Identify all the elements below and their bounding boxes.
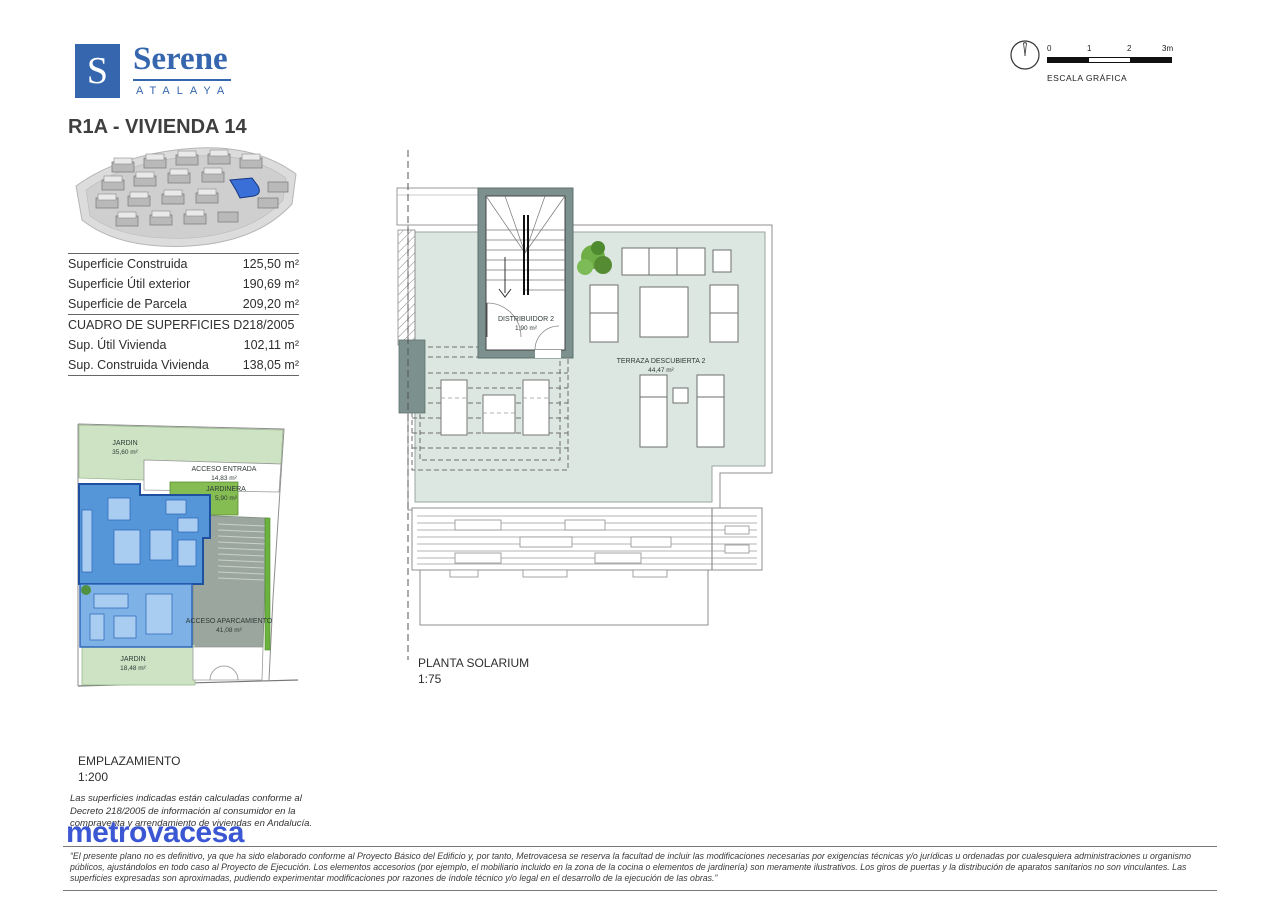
label-acceso-entrada: ACCESO ENTRADA 14,83 m² [192, 466, 257, 483]
label-jardin-top: JARDIN 35,60 m² [112, 440, 138, 457]
scale-bar-label: ESCALA GRÁFICA [1047, 73, 1172, 83]
serene-logo-letter: S [87, 49, 108, 93]
site-plan-caption: EMPLAZAMIENTO 1:200 [78, 754, 180, 785]
table-row: Superficie Construida125,50 m² [68, 254, 299, 274]
site-plan-drawing [70, 418, 302, 710]
divider-top [63, 846, 1217, 847]
north-arrow-icon [1008, 38, 1044, 74]
serene-logo-mark: S [75, 44, 120, 98]
scale-bar [1047, 57, 1172, 63]
scale-ticks: 0 1 2 3m [1047, 44, 1172, 55]
development-keyplan [72, 138, 302, 258]
table-row: Superficie Útil exterior190,69 m² [68, 274, 299, 294]
plan-sheet: S Serene ATALAYA R1A - VIVIENDA 14 0 1 2… [0, 0, 1280, 905]
solarium-floor-plan [395, 145, 777, 667]
table-row: Sup. Útil Vivienda102,11 m² [68, 335, 299, 355]
serene-logo-name: Serene [133, 44, 231, 81]
label-acceso-aparcamiento: ACCESO APARCAMIENTO 41,08 m² [186, 618, 272, 635]
label-jardin-bottom: JARDIN 18,48 m² [120, 656, 146, 673]
divider-bottom [63, 890, 1217, 891]
label-jardinera: JARDINERA 5,90 m² [206, 486, 246, 503]
surfaces-table: Superficie Construida125,50 m² Superfici… [68, 253, 299, 376]
serene-logo: S Serene ATALAYA [75, 44, 231, 98]
disclaimer-text: “El presente plano no es definitivo, ya … [70, 851, 1215, 884]
serene-logo-subtitle: ATALAYA [133, 85, 231, 97]
label-distribuidor: DISTRIBUIDOR 2 1,90 m² [498, 316, 554, 333]
table-section-header: CUADRO DE SUPERFICIES D218/2005 [68, 315, 299, 335]
graphic-scale: 0 1 2 3m ESCALA GRÁFICA [1047, 44, 1172, 83]
label-terraza: TERRAZA DESCUBIERTA 2 44,47 m² [617, 358, 706, 375]
floor-plan-caption: PLANTA SOLARIUM 1:75 [418, 656, 529, 687]
table-row: Superficie de Parcela209,20 m² [68, 294, 299, 314]
table-row: Sup. Construida Vivienda138,05 m² [68, 355, 299, 375]
metrovacesa-logo: metrovacesa [66, 816, 244, 850]
page-title: R1A - VIVIENDA 14 [68, 116, 247, 139]
